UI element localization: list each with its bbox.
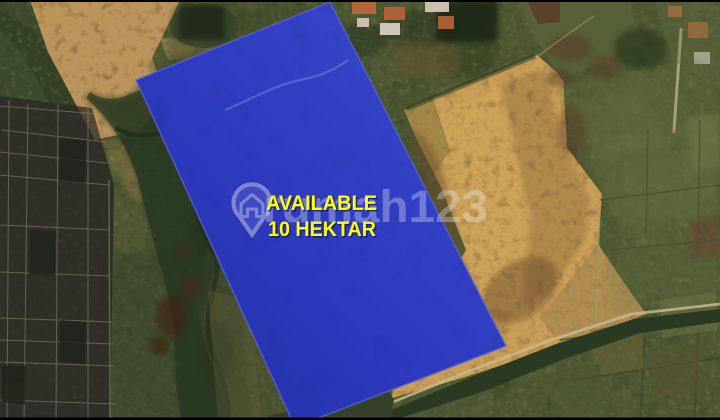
svg-text:10 HEKTAR: 10 HEKTAR bbox=[268, 218, 376, 241]
svg-text:AVAILABLE: AVAILABLE bbox=[266, 192, 377, 215]
